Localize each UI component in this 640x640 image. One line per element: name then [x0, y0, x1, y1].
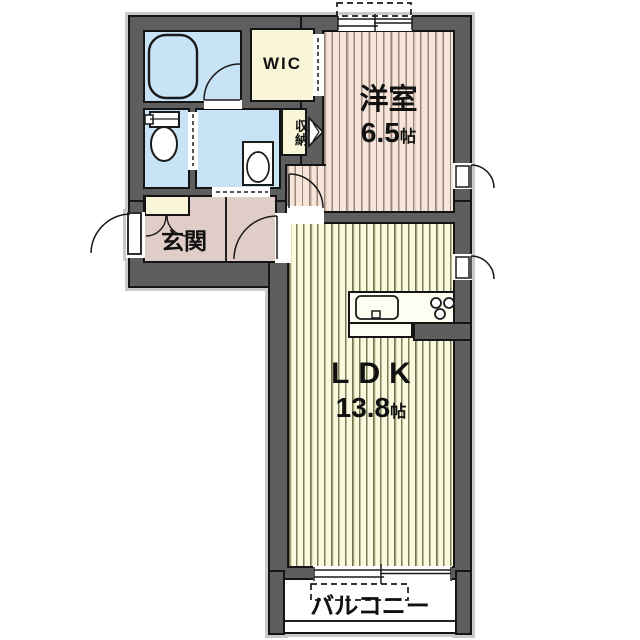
balcony-sliding-door-icon [314, 564, 451, 584]
balcony-label: バルコニー [283, 593, 457, 621]
western-room-door-icon [289, 174, 323, 208]
fixtures-overlay [0, 0, 640, 640]
stove-burners-icon [431, 298, 454, 319]
wic-label: WIC [250, 54, 315, 74]
bathroom-door-icon [204, 64, 240, 100]
casement-window2-icon [456, 256, 494, 279]
ldk-area: 13.8帖 [287, 392, 455, 424]
western-room-label: 洋室 6.5帖 [322, 84, 455, 150]
toilet-icon [145, 112, 179, 161]
casement-window1-icon [456, 165, 494, 188]
storage-label: 収納 [281, 111, 307, 155]
hall-ldk-door-icon [234, 216, 277, 259]
washbasin-icon [243, 142, 273, 185]
ac-unit-outline-top [337, 3, 411, 16]
entrance-label: 玄関 [143, 228, 225, 254]
entrance-door-icon [91, 213, 141, 254]
storage-folding-door-icon [309, 118, 323, 146]
ldk-label: LDK 13.8帖 [287, 357, 455, 424]
western-room-name: 洋室 [322, 84, 455, 117]
ldk-name: LDK [296, 357, 455, 392]
bathtub-icon [149, 35, 197, 98]
western-room-area: 6.5帖 [322, 117, 455, 149]
kitchen-sink-icon [356, 296, 398, 319]
floorplan-canvas: WIC 収納 洋室 6.5帖 LDK 13.8帖 玄関 バルコニー [0, 0, 640, 640]
